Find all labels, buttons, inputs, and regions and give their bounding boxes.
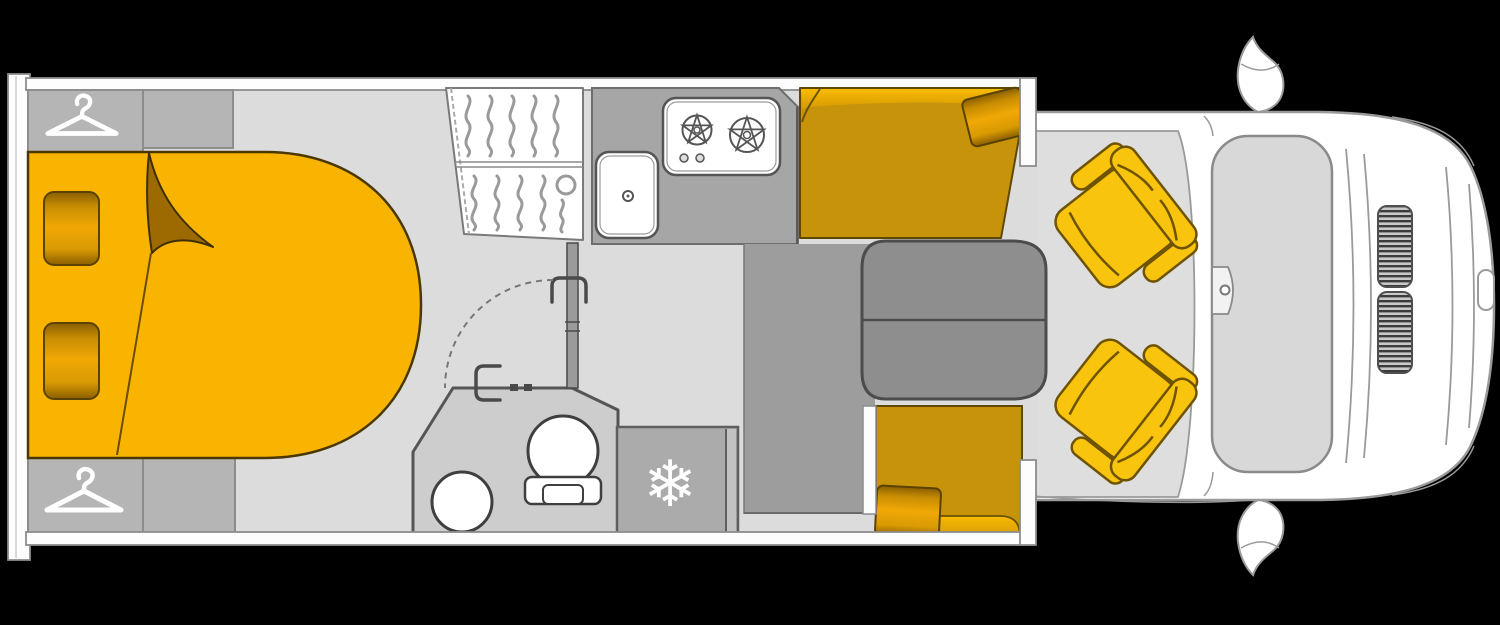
bed-pillow-bottom — [44, 323, 99, 399]
toilet-seat-lid — [543, 485, 583, 504]
wall-stub-bottom-right — [1020, 460, 1036, 545]
wall-bottom — [26, 532, 1034, 545]
door-hinge — [510, 384, 518, 391]
stove-knob — [696, 154, 704, 162]
dinette-platform — [744, 244, 875, 514]
wall-rear — [8, 74, 30, 560]
washbasin — [432, 472, 492, 532]
toilet — [528, 416, 598, 486]
sink-drain-dot — [627, 195, 630, 198]
fridge-hinge-strip — [727, 429, 736, 533]
snowflake-icon: ❄ — [643, 448, 697, 522]
motorhome-floorplan: ❄ — [0, 0, 1500, 625]
cabinet-top — [143, 90, 233, 148]
stove-knob — [680, 154, 688, 162]
stove — [663, 98, 780, 175]
cabinet-bottom — [143, 457, 235, 535]
partition-stub — [863, 406, 876, 514]
vehicle-cab — [1032, 37, 1494, 575]
bench-pillow-bottom — [875, 485, 942, 538]
dinette-table — [862, 241, 1046, 399]
bathroom-door — [567, 243, 578, 388]
shower-drain-icon — [557, 176, 575, 194]
grille-lower — [1378, 292, 1412, 373]
side-mirror-top-icon — [1238, 37, 1284, 112]
shower-wardrobe — [446, 88, 583, 240]
grille-upper — [1378, 206, 1412, 287]
wall-stub-top-right — [1020, 78, 1036, 166]
mirror-mount-dot — [1221, 286, 1230, 295]
door-hinge — [524, 384, 532, 391]
fridge: ❄ — [617, 427, 738, 535]
side-mirror-bottom-icon — [1238, 500, 1284, 575]
habitation-area: ❄ — [8, 74, 1046, 560]
front-emblem — [1478, 270, 1494, 310]
wardrobe-top-left — [28, 90, 143, 152]
bed-pillow-top — [44, 192, 99, 265]
